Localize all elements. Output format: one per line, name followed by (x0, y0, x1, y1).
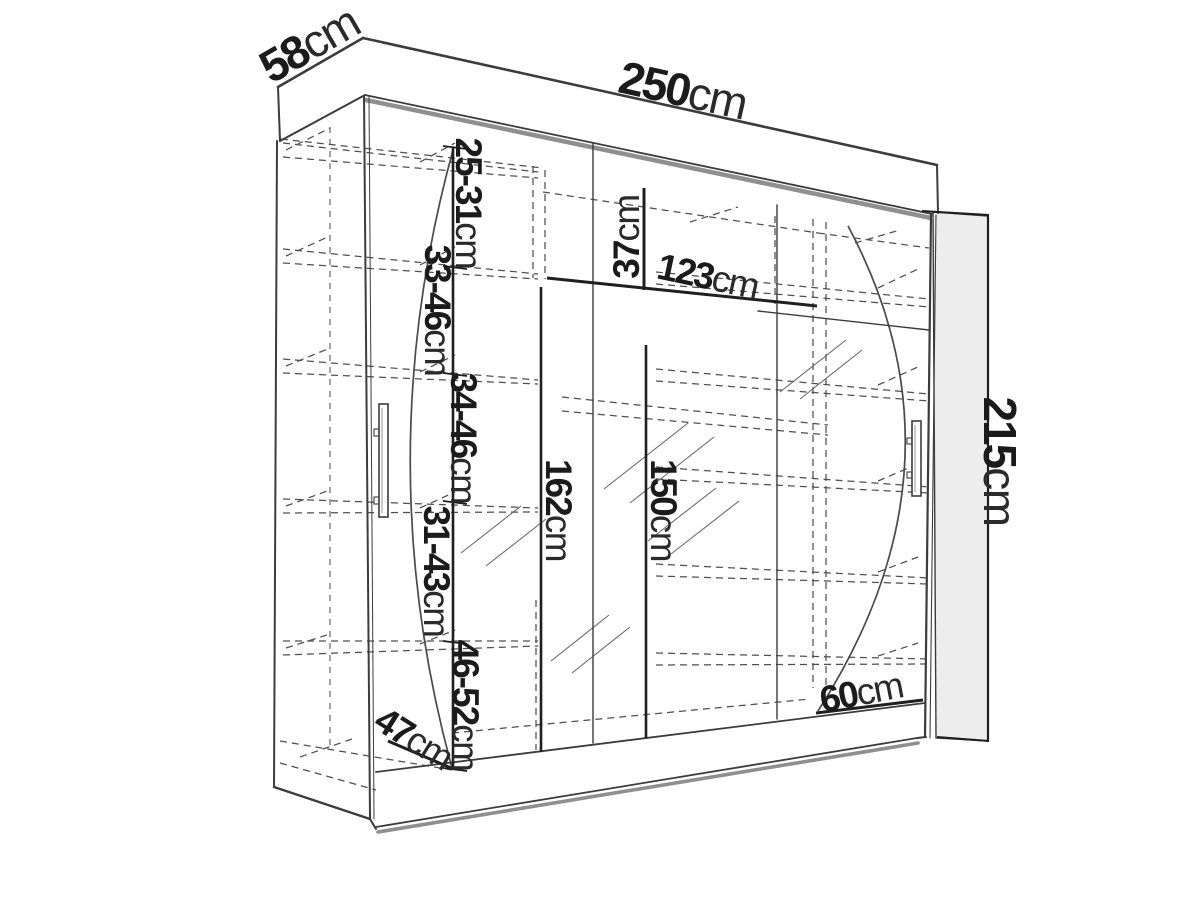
wardrobe-diagram: 58cm 250cm 215cm 25-31cm 33-46cm 34-46cm… (0, 0, 1200, 900)
gap-label-b: 33-46cm (417, 245, 458, 376)
left-interior-height-label: 162cm (538, 459, 579, 561)
right-interior-height-label: 150cm (643, 459, 684, 561)
bottom-span-label: 60cm (816, 664, 906, 720)
right-door-arc (818, 226, 905, 711)
right-door-handle (907, 421, 921, 496)
wardrobe-diagram-page: 58cm 250cm 215cm 25-31cm 33-46cm 34-46cm… (0, 0, 1200, 900)
width-label: 250cm (614, 51, 751, 130)
top-compartment-label: 37cm (606, 195, 647, 278)
depth-label: 58cm (250, 0, 367, 93)
upper-shelf-span-label: 123cm (654, 246, 762, 307)
left-door-handle (374, 404, 388, 517)
gap-label-c: 34-46cm (443, 373, 484, 504)
height-label: 215cm (974, 396, 1026, 525)
gap-label-d: 31-43cm (416, 506, 457, 637)
